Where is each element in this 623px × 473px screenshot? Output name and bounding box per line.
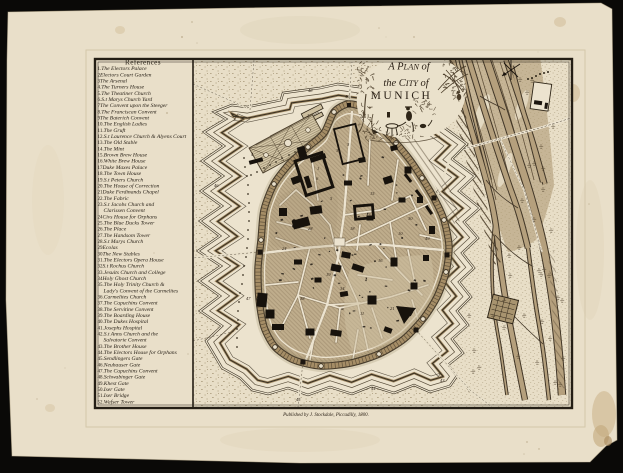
svg-text:8.The Franciscan Convent: 8.The Franciscan Convent <box>98 109 158 115</box>
svg-text:39.The Boarding House: 39.The Boarding House <box>98 313 151 319</box>
svg-text:47: 47 <box>246 296 251 301</box>
svg-text:23.S.t Jacobs Church and: 23.S.t Jacobs Church and <box>98 202 155 208</box>
svg-text:7The Convent upon the Steeger: 7The Convent upon the Steeger <box>98 103 169 109</box>
svg-text:45.Sendlingers Gate: 45.Sendlingers Gate <box>98 356 143 362</box>
svg-text:3The Arsenal: 3The Arsenal <box>98 79 128 85</box>
svg-text:15: 15 <box>370 191 375 196</box>
svg-text:A PLAN of: A PLAN of <box>387 62 432 73</box>
svg-text:52.Wafser Tower: 52.Wafser Tower <box>98 398 136 405</box>
svg-text:43.The Brother House: 43.The Brother House <box>98 344 147 350</box>
svg-text:the CITY of: the CITY of <box>383 78 430 89</box>
svg-text:21Duke Ferdinands Chapel: 21Duke Ferdinands Chapel <box>98 190 160 196</box>
svg-text:13.The Old Stable: 13.The Old Stable <box>98 140 138 146</box>
svg-text:34Holy Ghost Church: 34Holy Ghost Church <box>98 276 147 282</box>
svg-text:13: 13 <box>366 212 371 217</box>
svg-text:9The Baterich Convent: 9The Baterich Convent <box>98 116 150 122</box>
svg-text:43: 43 <box>440 378 445 383</box>
svg-text:49: 49 <box>345 94 350 99</box>
svg-text:11: 11 <box>360 311 364 316</box>
svg-text:28: 28 <box>308 226 313 231</box>
svg-text:4.The Turners House: 4.The Turners House <box>98 85 145 91</box>
svg-text:34: 34 <box>340 286 345 291</box>
svg-text:29Ecolas: 29Ecolas <box>98 245 118 251</box>
svg-text:17Duke Maxes Palace: 17Duke Maxes Palace <box>98 165 148 171</box>
svg-text:27.The Handsom Tower: 27.The Handsom Tower <box>98 233 151 239</box>
svg-text:5.The Theatiner Church: 5.The Theatiner Church <box>98 91 151 97</box>
svg-text:32S.t Rochus Church: 32S.t Rochus Church <box>98 264 145 270</box>
svg-text:30: 30 <box>408 216 413 221</box>
svg-text:19: 19 <box>326 272 331 277</box>
svg-text:35.The Holy Trinity Church &: 35.The Holy Trinity Church & <box>98 282 166 288</box>
svg-text:16.White Brew House: 16.White Brew House <box>98 159 147 165</box>
svg-text:15.Brown Brew House: 15.Brown Brew House <box>98 153 148 159</box>
svg-text:10: 10 <box>398 231 403 236</box>
svg-text:28.S.t Marys Church: 28.S.t Marys Church <box>98 239 144 245</box>
svg-text:6.S.t Marys Church Yard: 6.S.t Marys Church Yard <box>98 97 153 103</box>
svg-text:Published by J. Stockdale, Pic: Published by J. Stockdale, Piccadilly, 1… <box>282 413 369 418</box>
svg-text:22.The Fabric: 22.The Fabric <box>98 196 130 202</box>
svg-text:25.The Blue Ducks Tower: 25.The Blue Ducks Tower <box>98 220 156 226</box>
svg-text:10.The English Ladies: 10.The English Ladies <box>98 122 147 128</box>
svg-text:49: 49 <box>425 236 430 241</box>
svg-text:Lady's Convent of the Carmelit: Lady's Convent of the Carmelites <box>103 287 179 294</box>
svg-text:41.Josephs Hospital: 41.Josephs Hospital <box>98 325 143 331</box>
svg-text:31: 31 <box>336 148 341 153</box>
svg-text:49.Khest Gate: 49.Khest Gate <box>98 381 130 387</box>
svg-text:37.The Capuchins Convent: 37.The Capuchins Convent <box>98 301 158 307</box>
svg-text:48: 48 <box>308 88 313 93</box>
svg-text:33.Jesuits Church and College: 33.Jesuits Church and College <box>98 270 167 276</box>
svg-text:Clarissen Convent: Clarissen Convent <box>104 208 146 214</box>
svg-text:45: 45 <box>296 397 301 402</box>
svg-text:51.Iser Bridge: 51.Iser Bridge <box>98 393 130 399</box>
svg-text:19.S.t Peters Church: 19.S.t Peters Church <box>98 177 144 183</box>
svg-text:26.The Place: 26.The Place <box>98 227 127 233</box>
svg-text:40.The Dukes Hospital: 40.The Dukes Hospital <box>98 319 149 325</box>
svg-text:38.The Servitine Convent: 38.The Servitine Convent <box>98 307 154 313</box>
svg-text:38: 38 <box>300 296 305 301</box>
svg-text:44.The Electors House for Orph: 44.The Electors House for Orphans <box>98 349 177 356</box>
svg-text:MUNICH: MUNICH <box>371 90 433 102</box>
svg-text:42.S.t Anns Church and the: 42.S.t Anns Church and the <box>98 332 159 338</box>
svg-text:11.The Gruft: 11.The Gruft <box>98 127 126 134</box>
svg-text:1: 1 <box>317 166 319 171</box>
svg-text:14.The Mint: 14.The Mint <box>98 146 125 152</box>
svg-text:46.Neuhauser Gate: 46.Neuhauser Gate <box>98 362 141 368</box>
svg-text:31.The Electors Opera House: 31.The Electors Opera House <box>98 258 165 264</box>
svg-text:12.S.t Laurence Church & Alyen: 12.S.t Laurence Church & Alyens Court <box>98 134 187 140</box>
svg-text:47.The Capuchins Convent: 47.The Capuchins Convent <box>98 369 158 375</box>
svg-text:Salvatorie Convent: Salvatorie Convent <box>104 338 147 344</box>
svg-text:18.The Town House: 18.The Town House <box>98 171 142 177</box>
svg-text:20.The House of Correction: 20.The House of Correction <box>98 182 160 189</box>
svg-text:24: 24 <box>282 246 287 251</box>
svg-text:16: 16 <box>378 258 383 263</box>
svg-text:2Electors Court Garden: 2Electors Court Garden <box>98 72 152 78</box>
svg-text:44: 44 <box>371 386 376 391</box>
svg-text:30The New Stables: 30The New Stables <box>98 251 140 257</box>
svg-text:48.Schwabinger Gate: 48.Schwabinger Gate <box>98 375 146 381</box>
svg-text:18: 18 <box>350 226 355 231</box>
svg-text:24Civs House for Orphans: 24Civs House for Orphans <box>98 213 158 220</box>
svg-text:36.Carmelites Church: 36.Carmelites Church <box>98 295 147 301</box>
svg-text:1.The Electors Palace: 1.The Electors Palace <box>98 66 148 72</box>
svg-text:21: 21 <box>390 306 395 311</box>
svg-text:50.Iser Gate: 50.Iser Gate <box>98 387 126 393</box>
svg-text:46: 46 <box>214 183 219 188</box>
